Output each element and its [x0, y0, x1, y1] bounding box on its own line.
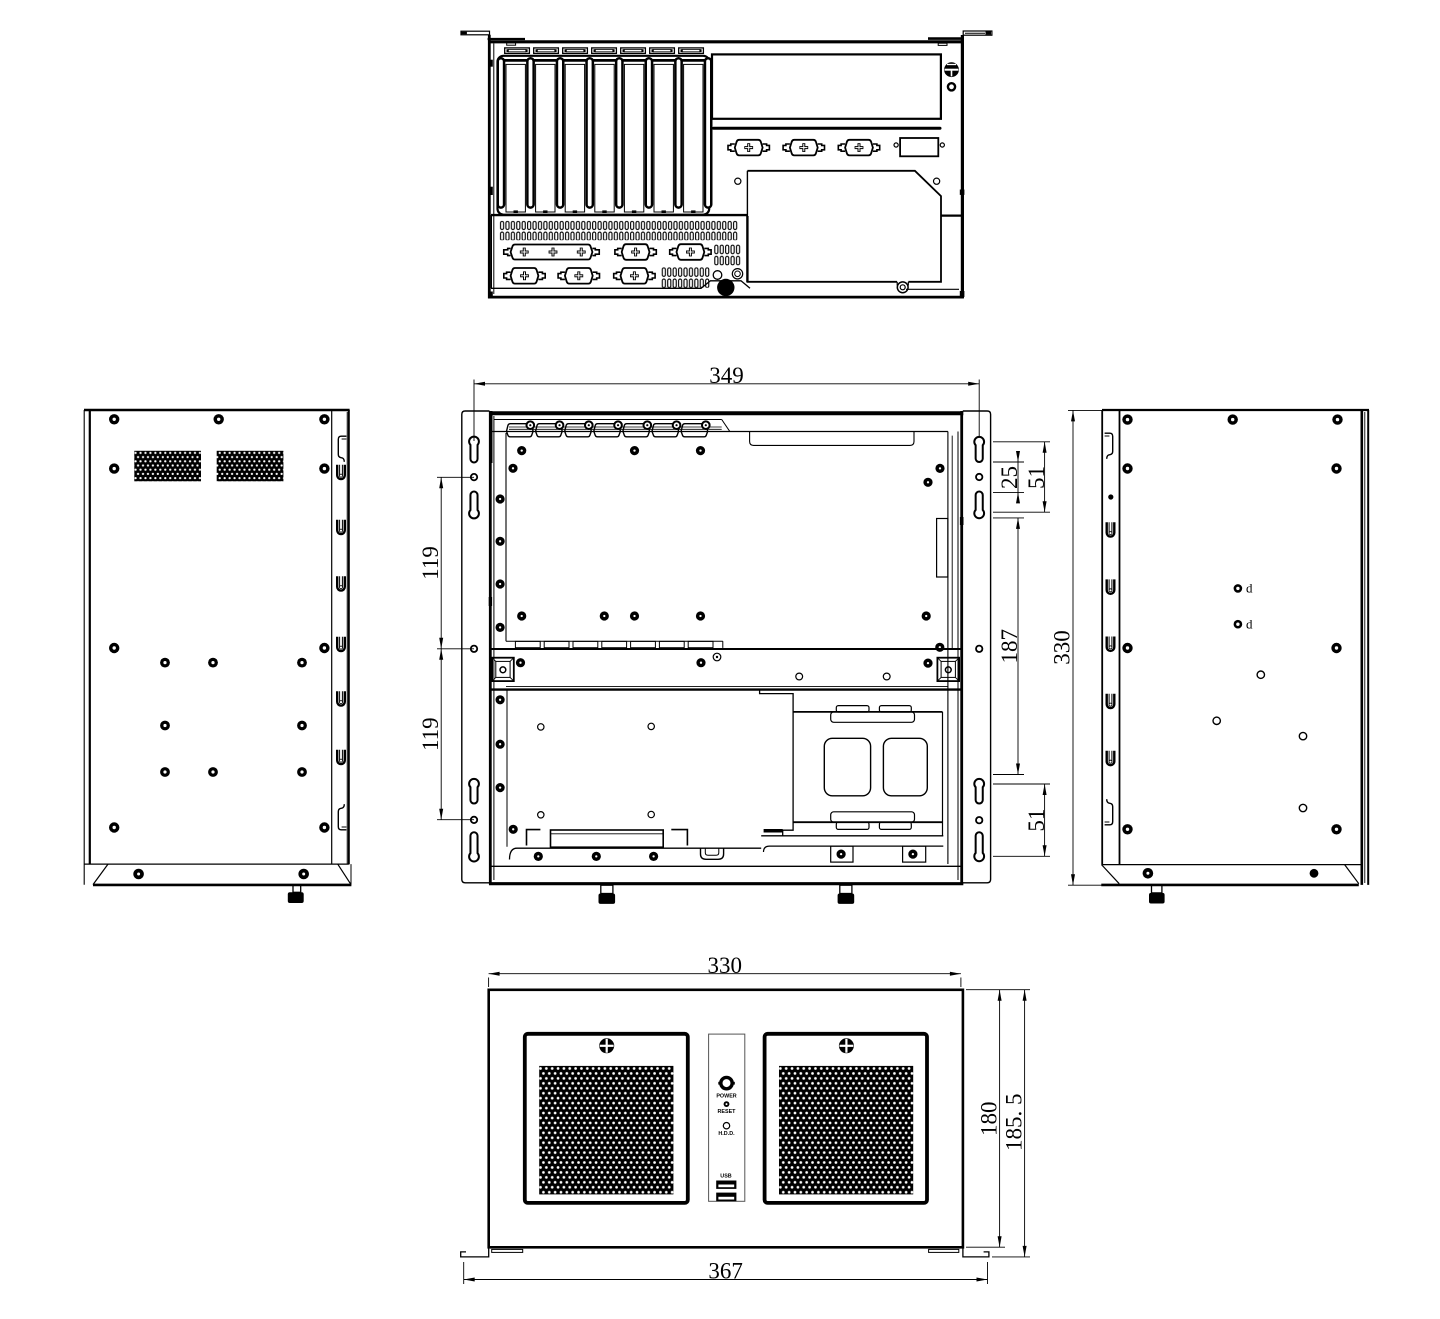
svg-text:51: 51: [1024, 809, 1049, 832]
svg-text:349: 349: [709, 363, 744, 388]
svg-text:d: d: [1246, 616, 1253, 631]
svg-text:367: 367: [708, 1259, 743, 1284]
svg-text:330: 330: [1050, 630, 1075, 665]
svg-text:25: 25: [997, 466, 1022, 489]
svg-text:H.D.D.: H.D.D.: [718, 1131, 735, 1137]
svg-text:180: 180: [976, 1102, 1001, 1137]
svg-text:119: 119: [418, 546, 443, 580]
svg-text:d: d: [1246, 581, 1253, 596]
svg-text:330: 330: [707, 953, 742, 978]
svg-text:POWER: POWER: [716, 1093, 736, 1099]
svg-text:USB: USB: [720, 1173, 731, 1179]
svg-text:RESET: RESET: [718, 1109, 737, 1115]
svg-text:187: 187: [997, 629, 1022, 664]
svg-text:185. 5: 185. 5: [1001, 1093, 1026, 1151]
svg-text:51: 51: [1024, 466, 1049, 489]
svg-text:119: 119: [418, 717, 443, 751]
